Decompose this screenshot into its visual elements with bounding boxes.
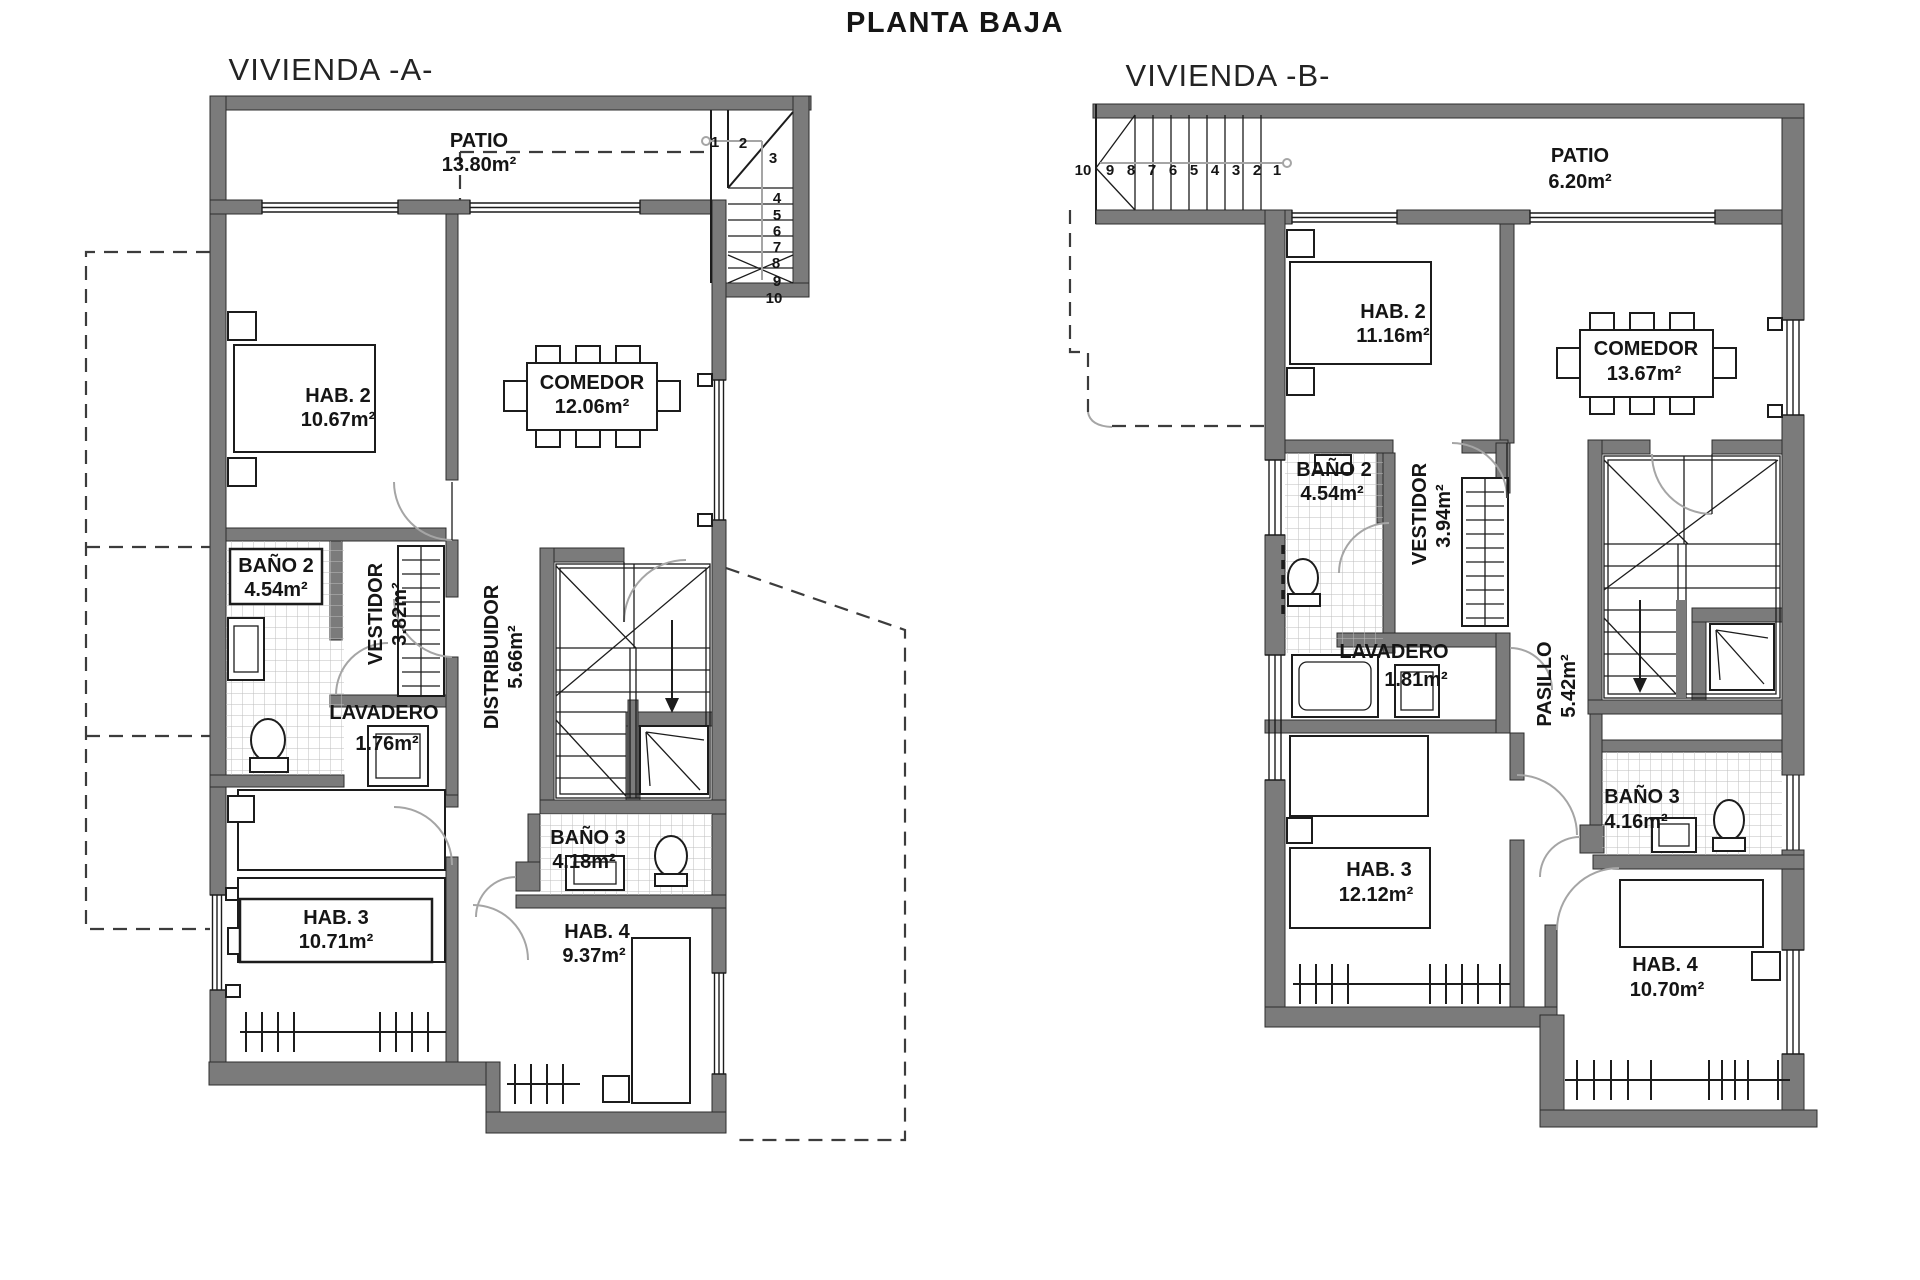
stair-step-label: 1 — [1273, 162, 1281, 179]
room-name: BAÑO 2 — [1296, 458, 1372, 481]
stair-step-label: 2 — [739, 135, 747, 152]
vivienda-b-bano2: BAÑO 2 4.54m² — [1285, 453, 1383, 717]
room-area: 4.54m² — [1300, 483, 1364, 505]
room-name: BAÑO 3 — [1604, 785, 1680, 808]
room-name: LAVADERO — [1339, 641, 1448, 663]
room-area: 4.18m² — [552, 851, 616, 873]
toilet-icon — [1288, 559, 1320, 606]
room-area: 10.71m² — [299, 931, 374, 953]
bed — [1620, 880, 1763, 947]
stair-step-label: 7 — [773, 239, 781, 256]
wardrobe-hatch — [1565, 1060, 1790, 1100]
room-name: HAB. 4 — [1632, 954, 1698, 976]
room-area: 12.06m² — [555, 396, 630, 418]
stair-step-label: 8 — [772, 255, 780, 272]
stair-step-label: 9 — [1106, 162, 1114, 179]
sink-icon — [228, 618, 264, 680]
vivienda-b-exterior-stairs: 10 9 8 7 6 5 4 3 2 1 — [1075, 115, 1291, 210]
room-area: 3.82m² — [389, 582, 411, 646]
stair-step-label: 3 — [769, 150, 777, 167]
room-name: BAÑO 3 — [550, 826, 626, 849]
room-area: 12.12m² — [1339, 884, 1414, 906]
bed — [228, 790, 445, 870]
toilet-icon — [250, 719, 288, 772]
nightstand — [603, 1076, 629, 1102]
room-area: 6.20m² — [1548, 171, 1612, 193]
room-area: 3.94m² — [1433, 484, 1455, 548]
stair-step-label: 5 — [773, 207, 781, 224]
room-area: 10.67m² — [301, 409, 376, 431]
room-name: COMEDOR — [1594, 338, 1699, 360]
room-name: PASILLO — [1534, 641, 1556, 726]
wardrobe — [1462, 478, 1508, 626]
bed — [1287, 736, 1428, 843]
room-name: HAB. 3 — [303, 907, 369, 929]
room-area: 4.54m² — [244, 579, 308, 601]
stair-step-label: 4 — [1211, 162, 1220, 179]
vivienda-a-bano3: BAÑO 3 4.18m² — [540, 814, 712, 895]
room-area: 9.37m² — [562, 945, 626, 967]
vivienda-a-plan: 1 2 3 4 5 6 7 8 9 10 — [86, 96, 905, 1140]
nightstand — [1752, 952, 1780, 980]
bed — [632, 938, 690, 1103]
stair-step-label: 7 — [1148, 162, 1156, 179]
stair-step-label: 6 — [1169, 162, 1177, 179]
stair-step-label: 6 — [773, 223, 781, 240]
bathtub-icon — [1292, 655, 1378, 717]
room-name: VESTIDOR — [365, 562, 387, 665]
stair-step-label: 9 — [773, 273, 781, 290]
stair-step-label: 2 — [1253, 162, 1261, 179]
room-name: HAB. 4 — [564, 921, 630, 943]
room-name: HAB. 3 — [1346, 859, 1412, 881]
shower-icon — [1710, 624, 1774, 690]
room-area: 11.16m² — [1356, 325, 1430, 347]
floor-plan-svg: PLANTA BAJA VIVIENDA -A- VIVIENDA -B- — [0, 0, 1920, 1280]
floor-plan-page: PLANTA BAJA VIVIENDA -A- VIVIENDA -B- — [0, 0, 1920, 1280]
stair-step-label: 1 — [711, 134, 719, 151]
room-area: 13.67m² — [1607, 363, 1682, 385]
room-name: PATIO — [1551, 145, 1609, 167]
wardrobe-hatch — [240, 1012, 446, 1052]
room-name: HAB. 2 — [305, 385, 371, 407]
vivienda-b-walls — [1093, 104, 1817, 1127]
stair-step-label: 10 — [1075, 162, 1092, 179]
vivienda-b-title: VIVIENDA -B- — [1126, 58, 1331, 93]
room-area: 5.66m² — [505, 625, 527, 689]
wardrobe-hatch — [507, 1064, 580, 1104]
room-area: 10.70m² — [1630, 979, 1705, 1001]
vivienda-b-bano3: BAÑO 3 4.16m² — [1602, 752, 1782, 855]
room-area: 13.80m² — [442, 154, 517, 176]
stair-step-label: 3 — [1232, 162, 1240, 179]
wardrobe-hatch — [1293, 964, 1510, 1004]
stair-step-label: 8 — [1127, 162, 1135, 179]
room-area: 5.42m² — [1558, 654, 1580, 718]
room-name: LAVADERO — [329, 702, 438, 724]
toilet-icon — [655, 836, 687, 886]
shower-icon — [640, 726, 708, 794]
vivienda-a-bano2: BAÑO 2 4.54m² — [226, 541, 344, 775]
room-name: HAB. 2 — [1360, 301, 1426, 323]
vivienda-b-plan: 10 9 8 7 6 5 4 3 2 1 — [1070, 104, 1817, 1127]
stair-step-label: 10 — [766, 290, 783, 307]
vivienda-b-dashed-lines — [1070, 210, 1283, 615]
stair-step-label: 5 — [1190, 162, 1198, 179]
room-name: PATIO — [450, 130, 508, 152]
room-area: 1.76m² — [355, 733, 419, 755]
room-name: BAÑO 2 — [238, 554, 314, 577]
toilet-icon — [1713, 800, 1745, 851]
room-area: 4.16m² — [1604, 811, 1668, 833]
room-name: COMEDOR — [540, 372, 645, 394]
vivienda-a-title: VIVIENDA -A- — [229, 52, 434, 87]
room-name: VESTIDOR — [1409, 462, 1431, 565]
stair-step-label: 4 — [773, 190, 782, 207]
page-title: PLANTA BAJA — [846, 7, 1064, 39]
room-area: 1.81m² — [1384, 669, 1448, 691]
room-name: DISTRIBUIDOR — [481, 584, 503, 729]
